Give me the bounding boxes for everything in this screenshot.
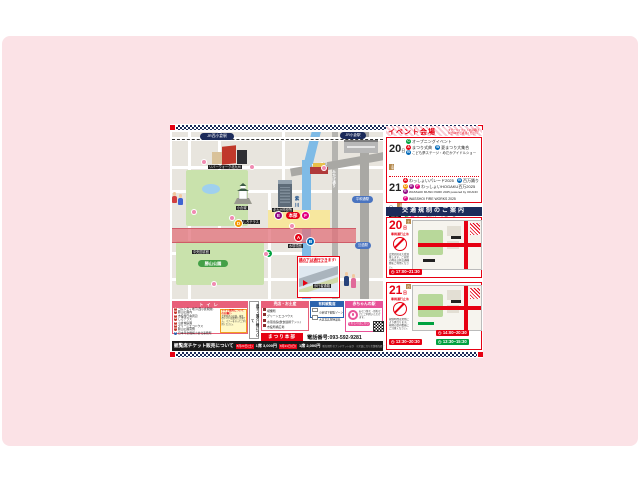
day20-weekday: 土曜 <box>389 164 394 170</box>
shop-item-text: 水環境館(飲食連携テント) <box>267 320 301 324</box>
event-text: わっしょいパレード2025 <box>409 178 454 183</box>
mini-label <box>423 259 435 262</box>
station-label-tanga: 旦過駅 <box>355 242 371 249</box>
map-label: リバーウォーク北九州 <box>208 165 242 169</box>
shop-icon <box>263 308 266 311</box>
border-accent <box>170 125 175 130</box>
venue-chip: E <box>409 184 414 189</box>
ticket-bar-label: 観覧席チケット販売について <box>174 343 234 349</box>
traffic-day20-number: 20 <box>389 218 402 232</box>
toilet-legend-box: トイレ 1コムシティ地下(西小倉駅前) 2勝山公園内 3市役所庁舎周辺 4しろテ… <box>172 301 248 334</box>
seat-icon <box>312 308 318 313</box>
person-body <box>344 276 349 286</box>
toilet-item-text: 日本年金機構小倉北事務所 <box>178 331 212 335</box>
day21-number: 21 <box>389 182 401 194</box>
shop-icon <box>263 319 266 322</box>
visitors-illustration <box>178 194 183 205</box>
station-zone-hatch <box>470 223 480 235</box>
venue-marker-e: E <box>275 212 282 219</box>
event-text: WASSHOI FIRE WORKS 2025 <box>409 197 456 201</box>
visitors-illustration <box>172 192 177 203</box>
partial-closed-road <box>418 322 434 325</box>
shop-icon <box>263 313 266 316</box>
baby-station-logo <box>348 310 358 320</box>
mini-label <box>451 236 461 239</box>
person-head <box>352 274 356 278</box>
time-banner: ◷ 13:30~20:30 <box>389 339 422 345</box>
day20-block: 20日 土曜 Cオープニングイベント Aまつり式典 B夏まつり大集合 Bこども夢… <box>389 139 479 175</box>
event-schedule-box: 20日 土曜 Cオープニングイベント Aまつり式典 B夏まつり大集合 Bこども夢… <box>386 137 482 203</box>
seats-legend-box: 有料観覧席 小倉城下観覧ゾーン 大正北広場特設席 <box>310 301 344 318</box>
event-text: まつり式典 <box>412 145 432 150</box>
toilet-notice-body: 会場周辺の店舗・施設のトイレは使用できません。マナーを守ってご利用ください。 <box>222 316 246 327</box>
map-label: 水環境館 <box>288 244 303 248</box>
arrow-graphic <box>303 280 308 286</box>
clock-icon: ◷ <box>438 330 442 335</box>
map-label: 中央図書館 <box>192 250 210 254</box>
event-row: FWASSHOI FIRE WORKS 2025 <box>403 196 479 203</box>
ticket-bar: 観覧席チケット販売について 8月20日(土) 1席 3,000円 8月21日(日… <box>172 341 383 351</box>
event-text: WASSHOI MUSIC PARK 2025 powered by OKANO <box>409 190 478 194</box>
shop-item: 市役所横広場 <box>263 324 307 329</box>
shop-item-text: グリーンエコハウス <box>267 314 293 318</box>
venue-chip: B <box>406 150 411 155</box>
closure-label: 車両通行止め <box>389 232 411 236</box>
venue-chip: C <box>406 139 411 144</box>
time-banner: ◷ 13:30~15:30 <box>436 339 469 345</box>
toilet-marker <box>290 224 294 228</box>
venue-marker-b: B <box>307 238 314 245</box>
shop-item-text: 市役所横広場 <box>267 325 284 329</box>
venue-chip: A <box>403 178 408 183</box>
hq-label: まつり本部 <box>261 333 303 341</box>
mini-block <box>447 226 461 236</box>
no-entry-icon <box>393 237 407 251</box>
seat-item: 大正北広場特設席 <box>312 315 342 323</box>
venue-marker-d: D <box>235 220 242 227</box>
closed-road <box>418 243 481 247</box>
time-text: 17:00~21:30 <box>396 269 420 274</box>
baby-station-button: くわしくはこちら <box>348 322 370 326</box>
traffic-header: 交通規制のご案内 <box>386 207 482 216</box>
seat-item-text: 大正北広場特設席 <box>319 319 341 322</box>
traffic-box-21: 21 日 日 車両通行止め 規制時間は場所により異なります。現地の案内看板にご注… <box>386 282 482 350</box>
toilet-marker <box>230 216 234 220</box>
number-chip: 7 <box>174 328 177 331</box>
station-label-heiwadori: 平和通駅 <box>352 196 373 203</box>
seat-item-text: 小倉城下観覧ゾーン <box>319 311 343 314</box>
baby-logo-head <box>352 313 355 316</box>
venue-chip: B <box>457 178 462 183</box>
event-panel-note-2: 公式HPをご確認ください <box>448 131 478 135</box>
toilet-marker <box>322 166 326 170</box>
toilet-notice-box: トイレ使用についてのお願い 会場周辺の店舗・施設のトイレは使用できません。マナー… <box>220 309 247 333</box>
venue-chip: F <box>415 184 420 189</box>
yukata-couple-illustration <box>351 274 356 288</box>
shops-legend-box: 売店・お土産 喫煙所 グリーンエコハウス 水環境館(飲食連携テント) 市役所横広… <box>261 301 309 331</box>
toilet-list: 1コムシティ地下(西小倉駅前) 2勝山公園内 3市役所庁舎周辺 4しろテラス 5… <box>173 308 220 336</box>
number-chip: 2 <box>174 311 177 314</box>
border-accent <box>478 352 483 357</box>
ticket-price: 1席 3,000円 <box>256 343 277 349</box>
clock-icon: ◷ <box>391 269 395 274</box>
traffic-box-20: 20 日 土 車両通行止め 会場周辺は大変混雑します。ご来場の際は公共交通機関を… <box>386 217 482 278</box>
baby-station-box: 赤ちゃんの駅 おむつ替え・授乳などにご利用いただけます。 くわしくはこちら <box>345 301 383 332</box>
time-banner: ◷ 14:00~20:30 <box>436 330 469 336</box>
riverwalk-red-block <box>222 145 236 164</box>
traffic-minimap-20 <box>412 220 482 270</box>
map-label: 小倉城 <box>236 206 248 210</box>
park-name-pill: 勝山公園 <box>198 260 228 267</box>
traffic-day20-weekday: 土 <box>406 219 411 224</box>
park-pond <box>202 184 220 194</box>
closure-label: 車両通行止め <box>389 297 411 301</box>
callout-image: 歩行者通路 <box>299 266 338 292</box>
street <box>268 190 271 299</box>
map-label: 北九州市役所 <box>272 208 293 212</box>
person-body <box>178 198 183 205</box>
no-entry-icon <box>393 302 407 316</box>
baby-station-text: おむつ替え・授乳などにご利用いただけます。 <box>359 310 382 319</box>
city-hall-windows <box>280 187 290 203</box>
city-hall-top <box>278 180 292 184</box>
toilet-marker <box>212 282 216 286</box>
riverwalk-illustration <box>212 144 252 164</box>
event-text: わっしょいHOGAKU百万2025 <box>421 184 475 189</box>
yukata-couple-illustration <box>344 272 349 286</box>
hq-phone: 電話番号:093-592-9281 <box>307 334 362 341</box>
shop-icon <box>263 324 266 327</box>
venue-chip: D <box>403 184 408 189</box>
venue-chip: E <box>403 189 408 194</box>
lost-and-found-text: 迷子・落とし物について <box>250 303 260 338</box>
day20-events: Cオープニングイベント Aまつり式典 B夏まつり大集合 Bこども夢ステージ・めだ… <box>406 139 476 175</box>
checkered-border-bottom <box>176 352 477 357</box>
event-text: 夏まつり大集合 <box>441 145 469 150</box>
station-zone-hatch <box>470 288 480 299</box>
kokura-station-illustration <box>344 140 378 153</box>
ticket-price: 1席 2,000円 <box>299 343 320 349</box>
parade-street-zone <box>172 228 356 243</box>
number-chip: 8 <box>174 332 177 335</box>
station-label-nishikokura: JR西小倉駅 <box>200 133 234 140</box>
street <box>172 166 383 169</box>
venue-chip: B <box>435 145 440 150</box>
traffic-day21-unit: 日 <box>403 290 407 296</box>
flyer: 紫川 JR西小倉駅 JR小倉駅 平和通駅 旦過駅 勝山通り みかげ通り 本部 <box>170 124 483 358</box>
shop-item-text: 喫煙所 <box>267 309 276 313</box>
hq-strip: まつり本部 電話番号:093-592-9281 <box>261 333 383 341</box>
person-body <box>172 196 177 203</box>
time-banner: ◷ 17:00~21:30 <box>389 269 422 275</box>
mini-label <box>451 300 461 303</box>
station-window-band <box>347 146 375 148</box>
callout-subtitle: BRIDGE UNDERPASS OK <box>299 262 338 265</box>
traffic-day20-unit: 日 <box>403 225 407 231</box>
clock-icon: ◷ <box>391 339 395 344</box>
event-panel-header: イベント会場 ステージイベントの詳細は 公式HPをご確認ください <box>386 126 482 136</box>
traffic-note: 会場周辺は大変混雑します。ご来場の際は公共交通機関をご利用ください。 <box>389 253 411 269</box>
venue-marker-f: F <box>302 212 309 219</box>
river-label: 紫川 <box>294 196 300 209</box>
person-head <box>345 272 349 276</box>
kokura-castle-illustration <box>230 182 256 204</box>
number-chip: 4 <box>174 318 177 321</box>
toilet-item-extra: 8日本年金機構小倉北事務所 <box>174 332 219 335</box>
event-panel-title: イベント会場 <box>388 127 436 137</box>
map-label: しろテラス <box>242 220 260 224</box>
station-label-kokura: JR小倉駅 <box>340 132 366 139</box>
toilet-marker <box>202 160 206 164</box>
venue-marker-a: A <box>295 234 302 241</box>
mini-block <box>447 290 461 300</box>
ticket-date-chip: 8月20日(土) <box>236 344 254 349</box>
city-hall-illustration <box>278 180 292 207</box>
toilet-marker <box>264 252 268 256</box>
event-text: 百万踊り <box>463 178 479 183</box>
time-text: 14:00~20:30 <box>443 330 467 335</box>
qr-code <box>373 321 384 332</box>
event-row: Bこども夢ステージ・めだかアイドルショー <box>406 150 476 157</box>
lost-and-found-notice: 迷子・落とし物について <box>249 301 259 339</box>
traffic-day21-weekday: 日 <box>406 284 411 289</box>
time-text: 13:30~20:30 <box>396 339 420 344</box>
ticket-note: ※定員になり次第販売終了 <box>356 344 385 348</box>
hq-label: 本部 <box>286 212 300 219</box>
seat-icon <box>312 315 318 320</box>
venue-chip: F <box>403 196 408 201</box>
traffic-note: 規制時間は場所により異なります。現地の案内看板にご注意ください。 <box>389 318 411 331</box>
closed-road <box>418 306 481 310</box>
day20-unit: 日 <box>401 148 405 153</box>
traffic-day21-number: 21 <box>389 283 402 297</box>
event-row: EWASSHOI MUSIC PARK 2025 powered by OKAN… <box>403 189 479 196</box>
ticket-date-chip: 8月21日(日) <box>279 344 297 349</box>
time-text: 13:30~15:30 <box>443 339 467 344</box>
toilet-marker <box>192 210 196 214</box>
venue-chip: A <box>406 145 411 150</box>
border-accent <box>170 352 175 357</box>
clock-icon: ◷ <box>438 339 442 344</box>
seat-item: 小倉城下観覧ゾーン <box>312 308 342 316</box>
mikage-street-label: みかげ通り <box>333 170 338 188</box>
event-text: オープニングイベント <box>412 139 452 144</box>
day20-date: 20日 土曜 <box>389 139 406 175</box>
event-text: こども夢ステージ・めだかアイドルショー <box>412 151 476 155</box>
person-head <box>173 192 177 196</box>
underpass-callout: 橋の下は通行できます! BRIDGE UNDERPASS OK 歩行者通路 <box>297 256 340 298</box>
riverwalk-black-block <box>237 150 247 164</box>
person-head <box>179 194 183 198</box>
festival-map: 紫川 JR西小倉駅 JR小倉駅 平和通駅 旦過駅 勝山通り みかげ通り 本部 <box>172 132 383 299</box>
day20-number: 20 <box>389 143 401 155</box>
person-body <box>351 278 356 288</box>
ticket-note: 販売場所:セブンチケットほか <box>322 344 354 348</box>
traffic-minimap-21 <box>412 285 482 331</box>
toilet-marker <box>250 165 254 169</box>
path-label: 歩行者通路 <box>313 284 331 288</box>
